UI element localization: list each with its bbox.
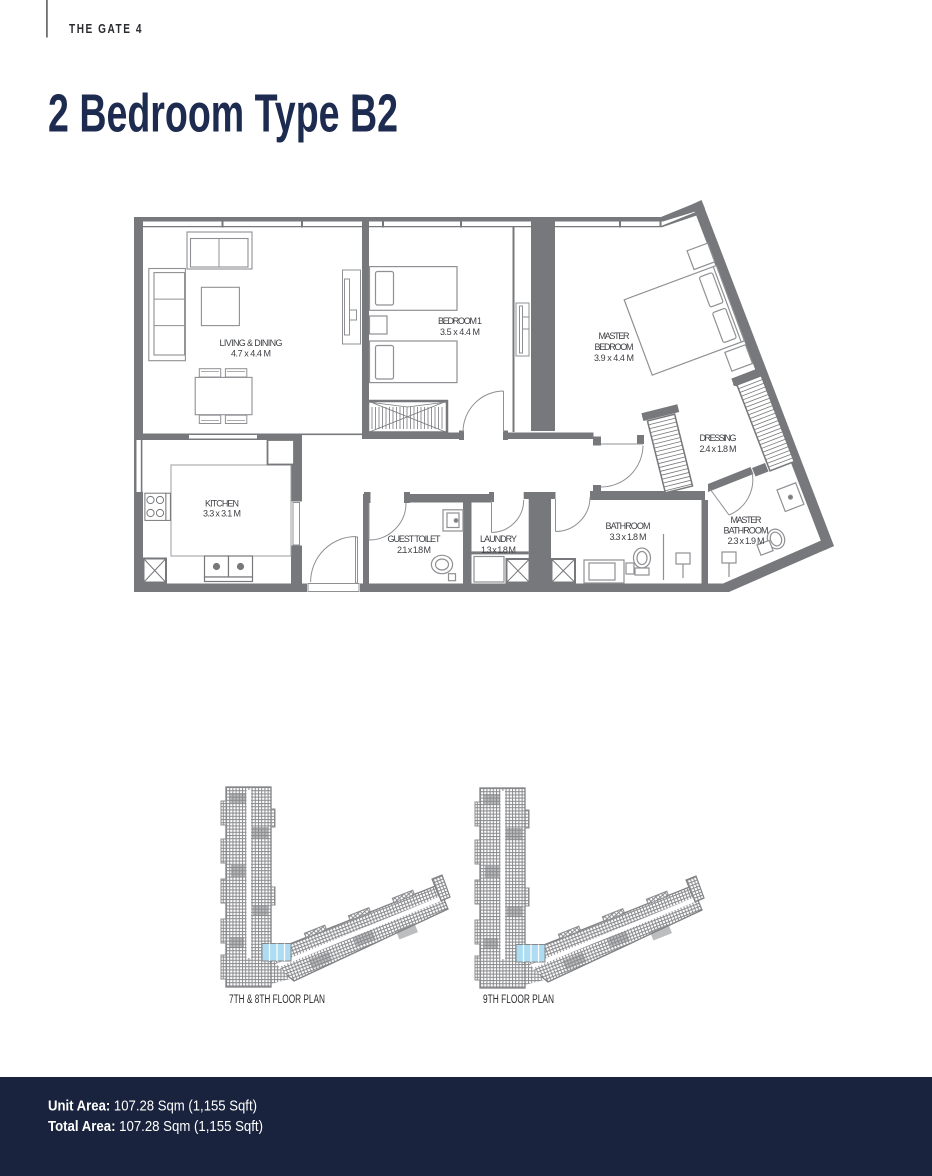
svg-text:2.1 x 1.8 M: 2.1 x 1.8 M (397, 545, 431, 555)
svg-text:MASTER: MASTER (599, 331, 631, 341)
svg-text:2.4 x 1.8 M: 2.4 x 1.8 M (700, 444, 737, 454)
svg-text:Total Area: 107.28 Sqm (1,155: Total Area: 107.28 Sqm (1,155 Sqft) (48, 1119, 263, 1135)
svg-text:THE GATE 4: THE GATE 4 (69, 21, 143, 36)
svg-text:Unit Area: 107.28 Sqm (1,155 S: Unit Area: 107.28 Sqm (1,155 Sqft) (48, 1099, 257, 1115)
svg-text:BATHROOM: BATHROOM (606, 521, 651, 531)
svg-text:LIVING & DINING: LIVING & DINING (220, 338, 283, 348)
svg-text:GUEST TOILET: GUEST TOILET (388, 534, 442, 544)
svg-text:KITCHEN: KITCHEN (205, 499, 239, 509)
svg-text:4.7 x 4.4 M: 4.7 x 4.4 M (231, 349, 271, 359)
svg-text:LAUNDRY: LAUNDRY (480, 534, 517, 544)
svg-text:BEDROOM 1: BEDROOM 1 (438, 316, 482, 326)
svg-text:9TH FLOOR PLAN: 9TH FLOOR PLAN (483, 994, 554, 1006)
svg-text:3.5 x 4.4 M: 3.5 x 4.4 M (440, 327, 480, 337)
svg-text:2.3 x 1.9 M: 2.3 x 1.9 M (728, 536, 765, 546)
svg-text:MASTER: MASTER (731, 515, 763, 525)
svg-text:3.3 x 3.1 M: 3.3 x 3.1 M (203, 509, 241, 519)
svg-text:7TH & 8TH FLOOR PLAN: 7TH & 8TH FLOOR PLAN (229, 994, 325, 1006)
svg-text:2 Bedroom Type B2: 2 Bedroom Type B2 (48, 84, 398, 144)
svg-text:BATHROOM: BATHROOM (724, 526, 769, 536)
svg-text:3.3 x 1.8 M: 3.3 x 1.8 M (610, 532, 647, 542)
svg-text:1.3 x 1.8 M: 1.3 x 1.8 M (481, 545, 516, 555)
svg-text:3.9 x 4.4 M: 3.9 x 4.4 M (594, 353, 634, 363)
svg-text:DRESSING: DRESSING (700, 433, 737, 443)
svg-text:BEDROOM: BEDROOM (595, 342, 634, 352)
